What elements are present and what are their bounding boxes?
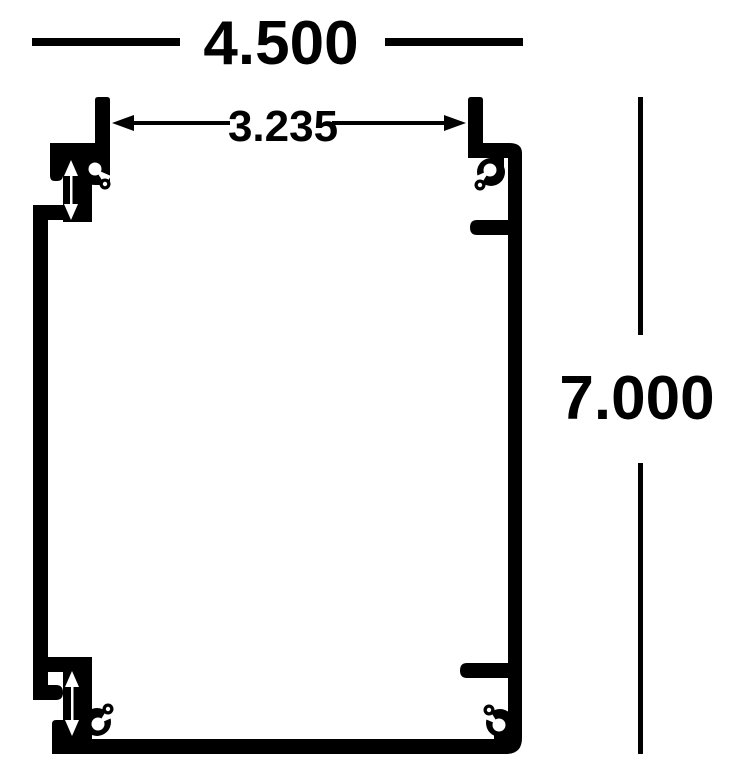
cross-section-canvas: 4.500 3.235 7.000	[0, 0, 735, 768]
slot-arrow-layer	[64, 160, 79, 736]
profile-bottom-right-fin	[460, 663, 508, 678]
extrusion-cross-section-drawing: 4.500 3.235 7.000	[0, 0, 735, 768]
profile-top-right-tab	[468, 97, 483, 158]
tab-spacing-arrowhead-right	[444, 115, 466, 131]
tab-spacing-arrowhead-left	[112, 115, 134, 131]
width-dimension-label: 4.500	[203, 9, 358, 78]
tab-spacing-arrow-line-right	[332, 121, 444, 125]
screw-boss-top-right	[474, 158, 505, 191]
ink-layer: 4.500 3.235 7.000	[32, 9, 715, 754]
profile-bottom-left-stub	[52, 720, 67, 739]
profile-top-left-hook-drop	[50, 143, 63, 181]
slot-arrow-stem-bottom-left	[71, 685, 74, 721]
height-dimension-label: 7.000	[559, 364, 714, 433]
tab-spacing-dimension-label: 3.235	[228, 102, 338, 151]
slot-arrow-stem-top-left	[70, 174, 73, 206]
width-dimension-line-right	[385, 38, 523, 46]
width-dimension-line-left	[32, 38, 180, 46]
profile-left-wall	[33, 205, 48, 700]
profile-right-and-bottom-wall	[52, 143, 522, 754]
profile-top-right-fin	[470, 220, 508, 235]
height-dimension-line-bottom	[638, 463, 643, 754]
tab-spacing-arrow-line-left	[132, 121, 230, 125]
height-dimension-line-top	[638, 97, 643, 335]
profile-bottom-left-foot	[33, 685, 63, 700]
